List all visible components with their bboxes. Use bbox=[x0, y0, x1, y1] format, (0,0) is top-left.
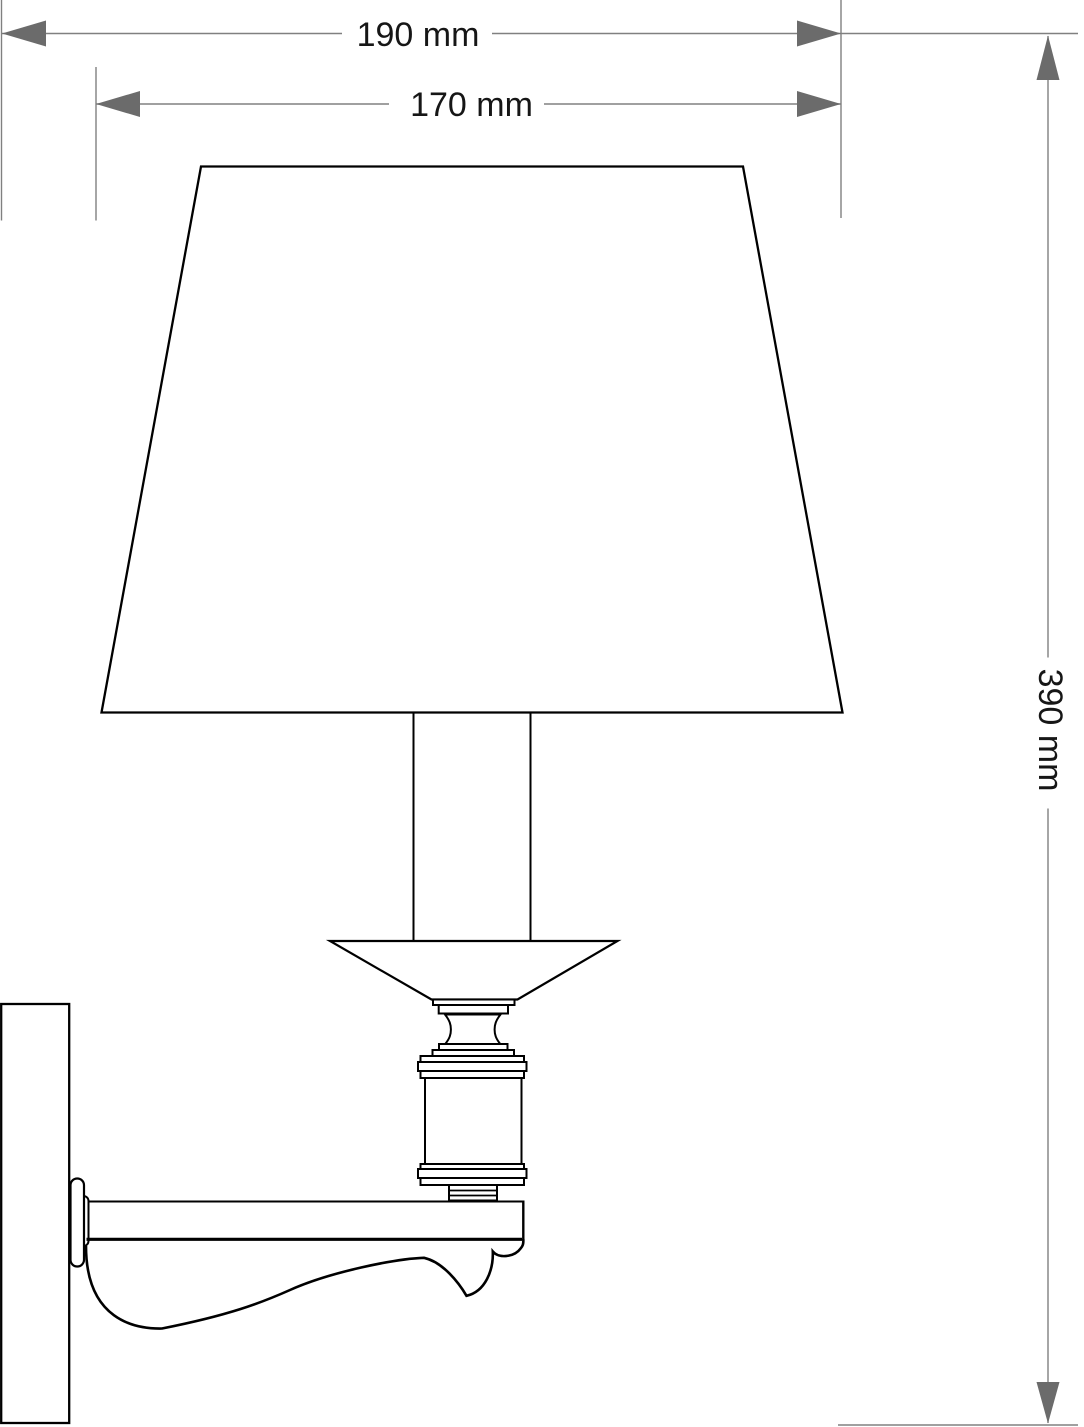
svg-text:170 mm: 170 mm bbox=[410, 86, 533, 124]
svg-text:390 mm: 390 mm bbox=[1031, 669, 1069, 792]
svg-text:190 mm: 190 mm bbox=[357, 16, 480, 54]
